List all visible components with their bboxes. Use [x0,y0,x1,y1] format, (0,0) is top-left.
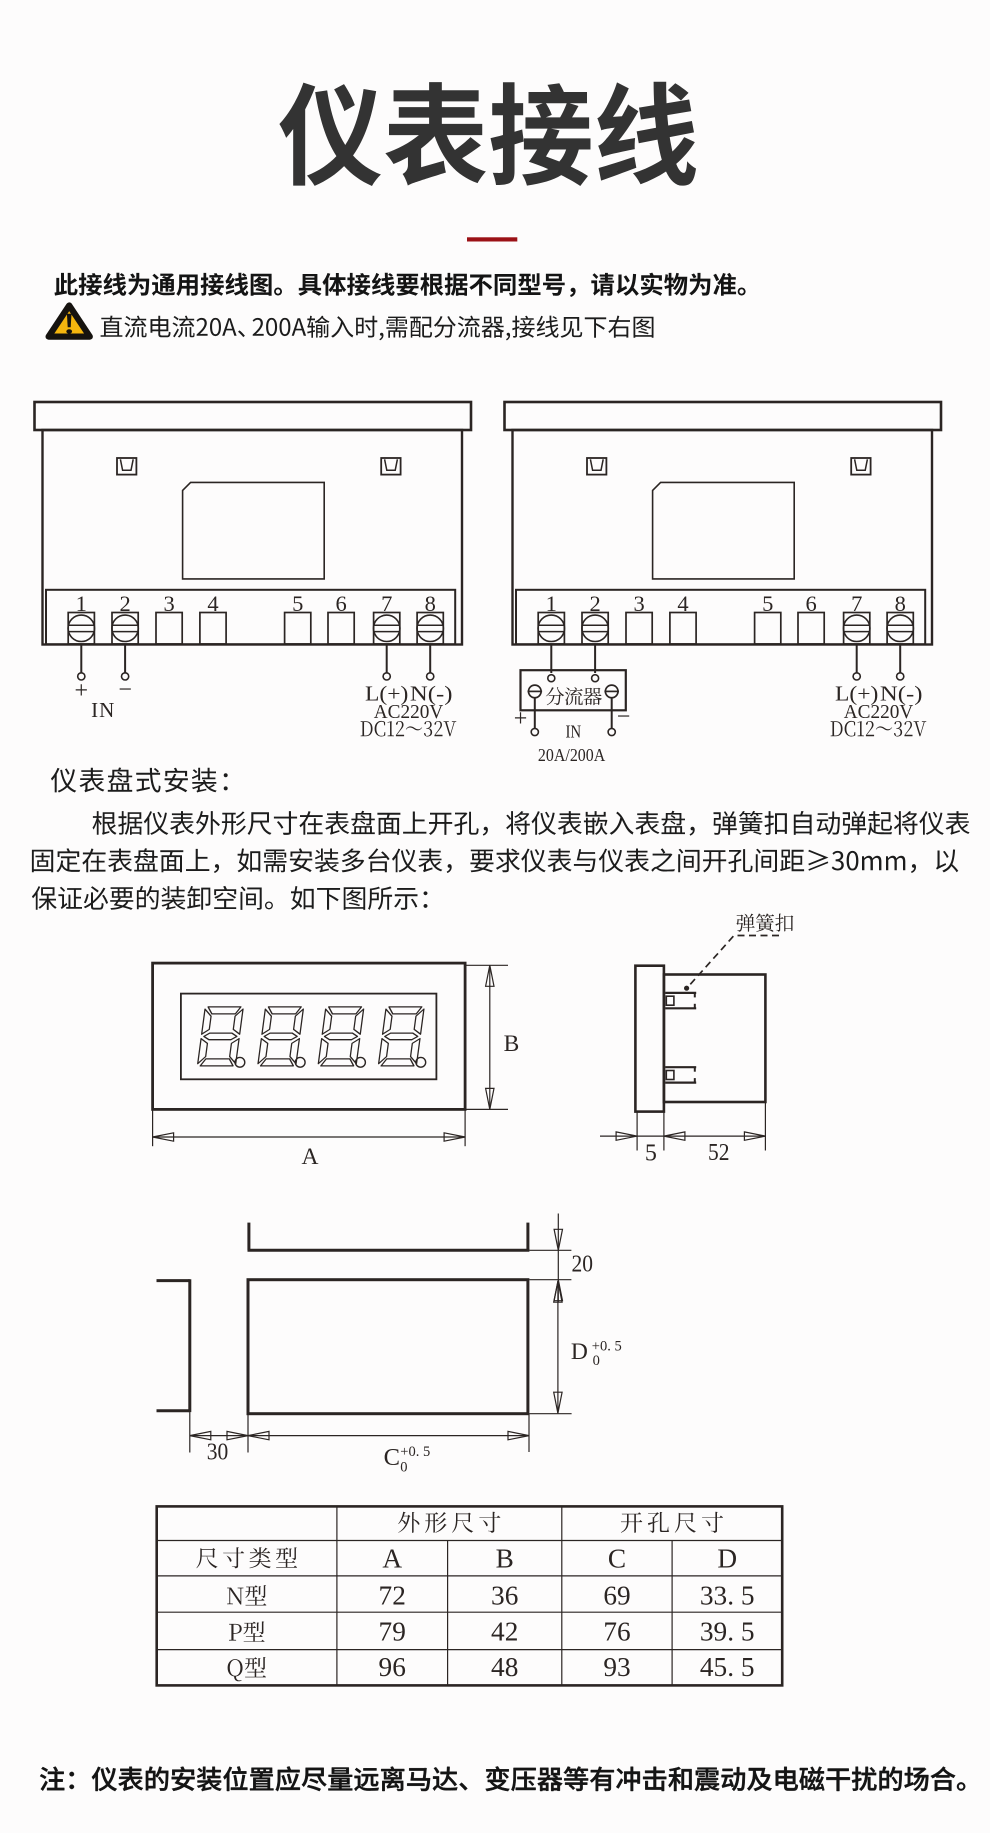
svg-text:93: 93 [603,1652,630,1682]
svg-text:33. 5: 33. 5 [700,1580,755,1610]
svg-text:AC220V: AC220V [844,701,914,723]
svg-text:72: 72 [379,1580,406,1610]
svg-text:48: 48 [491,1652,518,1682]
svg-text:96: 96 [379,1652,406,1682]
svg-text:39. 5: 39. 5 [700,1617,755,1647]
svg-text:45. 5: 45. 5 [700,1652,755,1682]
svg-text:−: − [118,677,132,703]
svg-text:A: A [382,1544,402,1574]
svg-text:−: − [617,704,631,730]
svg-text:D: D [571,1339,588,1365]
svg-text:52: 52 [708,1140,730,1166]
svg-text:IN: IN [565,722,581,742]
svg-text:C: C [608,1544,626,1574]
svg-text:+: + [514,706,528,732]
svg-text:0: 0 [593,1353,600,1369]
svg-text:B: B [496,1544,514,1574]
svg-text:69: 69 [603,1580,630,1610]
svg-text:79: 79 [379,1617,406,1647]
svg-text:30: 30 [207,1440,229,1466]
svg-text:+: + [75,678,89,704]
svg-text:B: B [504,1031,520,1057]
svg-text:+0. 5: +0. 5 [400,1444,430,1460]
svg-text:D: D [717,1544,737,1574]
svg-text:36: 36 [491,1580,518,1610]
svg-text:20: 20 [571,1252,593,1278]
svg-text:IN: IN [91,698,115,722]
svg-text:C: C [384,1444,400,1471]
svg-text:AC220V: AC220V [374,701,444,723]
svg-text:0: 0 [400,1459,407,1475]
svg-text:5: 5 [645,1140,657,1166]
svg-text:76: 76 [603,1617,630,1647]
svg-text:A: A [302,1144,319,1170]
svg-text:42: 42 [491,1617,518,1647]
svg-text:20A/200A: 20A/200A [538,745,605,765]
